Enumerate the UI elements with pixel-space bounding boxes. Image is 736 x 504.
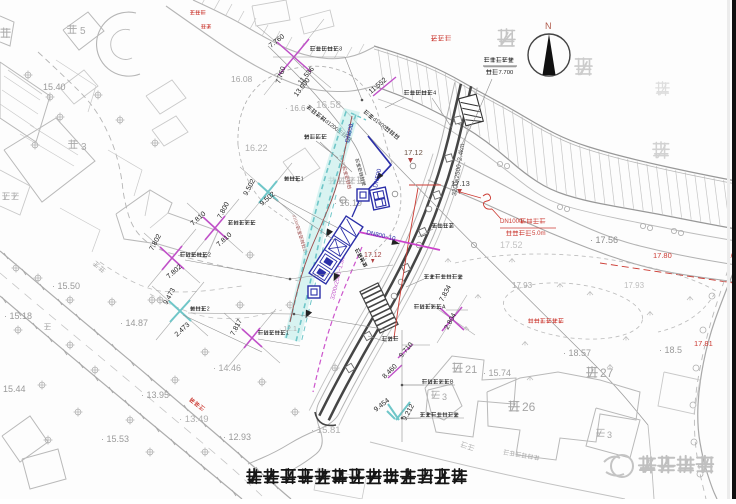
svg-text:17.81: 17.81 [694, 339, 713, 348]
svg-text:17.93: 17.93 [624, 281, 645, 290]
svg-text:· 15.18: · 15.18 [4, 311, 32, 321]
svg-text:DN1000: DN1000 [500, 218, 523, 225]
svg-text:15.44: 15.44 [3, 384, 26, 394]
svg-text:· 18.5: · 18.5 [659, 345, 682, 355]
svg-text:B: B [450, 379, 454, 385]
svg-text:1: 1 [286, 330, 289, 336]
svg-text:· 15.81: · 15.81 [311, 425, 341, 436]
svg-text:17.52: 17.52 [500, 240, 523, 250]
svg-text:3: 3 [339, 47, 342, 53]
svg-text:· 13.49: · 13.49 [179, 414, 209, 425]
svg-text:2: 2 [208, 252, 211, 258]
svg-text:5.0m: 5.0m [532, 230, 546, 237]
svg-text:7.700: 7.700 [499, 70, 514, 76]
svg-text:2: 2 [207, 306, 210, 312]
svg-text:17.93: 17.93 [512, 281, 533, 290]
svg-text:16.08: 16.08 [231, 74, 253, 84]
svg-text:· 15.53: · 15.53 [101, 434, 129, 444]
svg-text:17.12: 17.12 [364, 252, 382, 259]
svg-text:5: 5 [80, 26, 86, 37]
svg-text:21: 21 [465, 364, 477, 376]
svg-text:3: 3 [442, 392, 447, 402]
svg-text:· 14.46: · 14.46 [213, 363, 241, 373]
svg-text:A: A [442, 304, 446, 310]
svg-text:· 15.74: · 15.74 [483, 368, 511, 378]
svg-text:· 17.56: · 17.56 [590, 235, 618, 245]
svg-text:27: 27 [600, 366, 614, 380]
svg-text:· 15.50: · 15.50 [52, 281, 80, 291]
svg-text:· 18.57: · 18.57 [563, 348, 591, 358]
svg-text:17.12: 17.12 [404, 148, 423, 157]
svg-text:4: 4 [433, 91, 436, 97]
svg-text:16.22: 16.22 [245, 143, 268, 153]
svg-text:17.80: 17.80 [653, 251, 672, 260]
svg-text:· 13.95: · 13.95 [141, 390, 169, 400]
svg-text:3: 3 [81, 142, 87, 153]
svg-text:1: 1 [301, 176, 304, 182]
svg-text:· 16.6: · 16.6 [285, 104, 306, 113]
svg-text:17.13: 17.13 [451, 179, 470, 188]
svg-text:3: 3 [607, 430, 612, 440]
svg-text:· 12.93: · 12.93 [223, 432, 251, 442]
svg-text:16.58: 16.58 [316, 100, 341, 111]
svg-text:15.40: 15.40 [43, 82, 66, 92]
svg-text:26: 26 [522, 400, 536, 414]
svg-text:N: N [545, 21, 552, 31]
svg-text:· 14.87: · 14.87 [120, 318, 148, 328]
